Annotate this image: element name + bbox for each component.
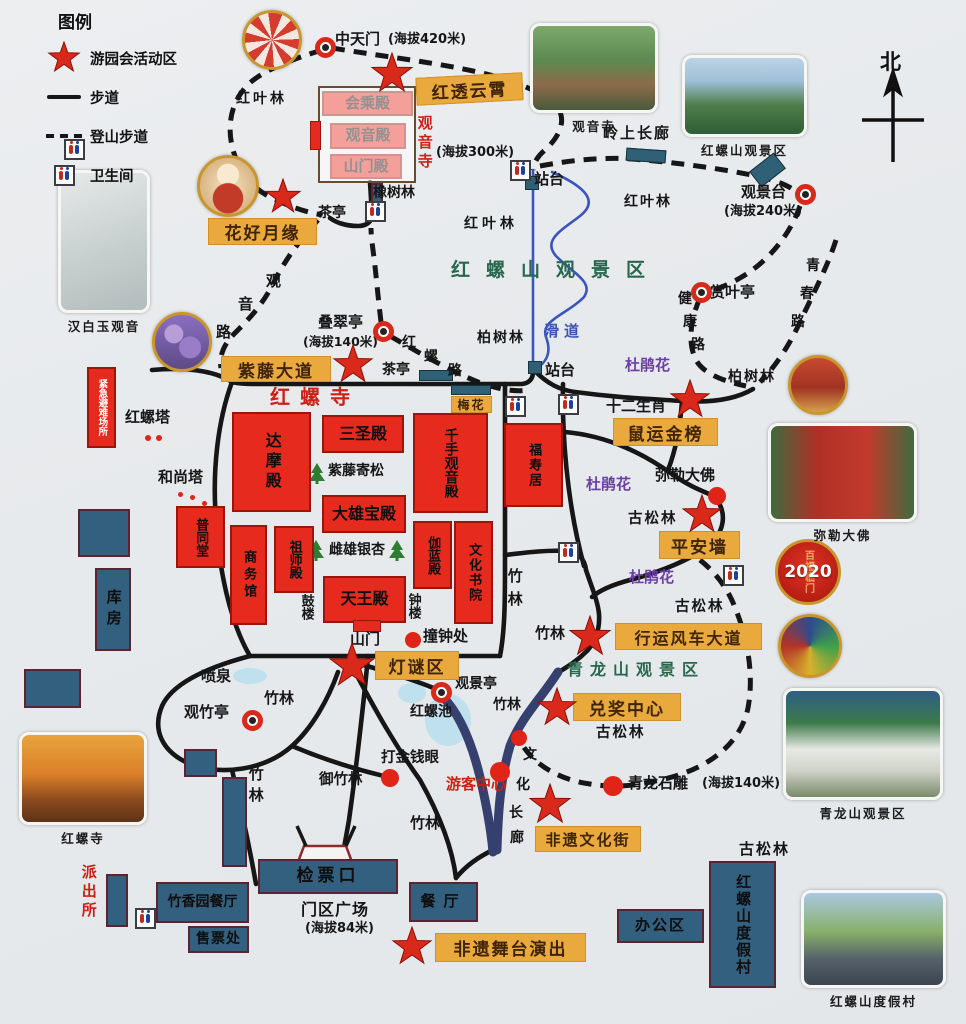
map-label: 赏叶亭 — [710, 285, 755, 301]
legend-row-walkway: 步道 — [44, 83, 177, 111]
building-label: 天王殿 — [340, 591, 388, 607]
activity-label: 梅花 — [451, 396, 492, 413]
building-label: 三圣殿 — [339, 426, 387, 442]
map-label: 健 — [678, 292, 692, 307]
facility-building — [106, 874, 128, 927]
temple-building: 伽蓝殿 — [413, 521, 452, 589]
pavilion-structure — [451, 385, 491, 395]
map-label: 观景亭 — [455, 677, 497, 692]
poi-dot — [190, 495, 195, 500]
event-star-icon — [681, 494, 723, 540]
poi-dot — [603, 776, 623, 796]
scenic-map: 图例 游园会活动区 步道 登山步道 卫生间 北 百福临门 2020 中天门(海拔… — [0, 0, 966, 1024]
photo-qinglongshan — [783, 688, 943, 800]
map-label: 红 — [402, 336, 416, 351]
building-label: 检票口 — [297, 868, 360, 885]
tree-icon — [309, 463, 325, 484]
temple-building: 大雄宝殿 — [322, 495, 406, 533]
photo-caption: 青龙山观景区 — [783, 803, 943, 822]
tree-icon — [389, 540, 405, 561]
facility-building — [222, 777, 247, 867]
label-police-station: 派出所 — [80, 864, 96, 921]
photo-caption: 红螺山观景区 — [682, 140, 807, 159]
photo-windmills — [778, 614, 842, 678]
facility-building: 竹香园餐厅 — [156, 882, 249, 923]
label-maitreya: 弥勒大佛 — [655, 468, 715, 484]
map-label: 竹林 — [535, 626, 565, 642]
badge-year: 2020 — [784, 562, 831, 582]
activity-label: 花好月缘 — [208, 218, 317, 245]
poi-dot — [156, 435, 162, 441]
temple-building: 文化书院 — [454, 521, 493, 624]
toilet-icon — [365, 201, 386, 222]
map-label: 喷泉 — [201, 669, 231, 685]
map-label: 路 — [216, 325, 231, 341]
building-label: 千手观音殿 — [443, 428, 457, 498]
event-star-icon — [568, 615, 612, 663]
map-label: 站台 — [534, 172, 564, 188]
toilet-icon — [505, 396, 526, 417]
map-label: 撞钟处 — [423, 629, 468, 645]
building-label: 紧急避难场所 — [97, 379, 107, 436]
photo-caption: 红螺寺 — [19, 828, 147, 847]
map-label: 观竹亭 — [184, 705, 229, 721]
map-label: 古松林 — [596, 726, 646, 741]
badge-2020: 百福临门 2020 — [775, 539, 841, 605]
map-label: 站台 — [545, 363, 575, 379]
map-label: 竹林 — [506, 568, 522, 614]
pavilion-structure — [626, 148, 667, 164]
legend-label: 游园会活动区 — [90, 48, 177, 69]
activity-label: 行运风车大道 — [615, 623, 762, 650]
label-slideway: 滑道 — [544, 324, 584, 340]
map-label: 音 — [238, 297, 253, 313]
map-label: 路 — [448, 364, 462, 379]
pavilion-structure — [528, 361, 542, 374]
label-dragon-sculpture: 青龙石雕 — [628, 776, 688, 792]
map-label: 红叶林 — [624, 195, 672, 210]
building-label: 普同堂 — [194, 518, 207, 557]
pavilion-marker — [691, 282, 712, 303]
photo-matchmaker — [197, 155, 259, 217]
north-label: 北 — [880, 46, 901, 76]
map-label: 雌雄银杏 — [329, 543, 385, 558]
map-label: 橡树林 — [373, 186, 415, 201]
compass-arrow — [862, 68, 924, 162]
building-label: 文化书院 — [467, 543, 480, 603]
label-hongluoshan-scenic-area: 红螺山观景区 — [451, 261, 661, 281]
pavilion-marker — [242, 710, 263, 731]
map-label: 鼓楼 — [299, 594, 313, 620]
temple-building: 商务馆 — [230, 525, 267, 625]
building-label: 达摩殿 — [263, 432, 279, 492]
facility-building: 红螺山度假村 — [709, 861, 776, 988]
photo-caption: 红螺山度假村 — [801, 991, 946, 1010]
map-label: 御竹林 — [319, 773, 363, 788]
map-label: 紫藤寄松 — [328, 464, 384, 479]
building-label: 竹香园餐厅 — [168, 895, 238, 909]
photo-guanyin-temple — [530, 23, 658, 113]
facility-building — [24, 669, 81, 708]
event-star-icon — [328, 642, 376, 694]
photo-resort — [801, 890, 946, 988]
compass: 北 — [852, 46, 901, 76]
pavilion-marker — [315, 37, 336, 58]
poi-dot — [381, 769, 399, 787]
building-label: 餐厅 — [420, 894, 466, 909]
map-label: 打金钱眼 — [381, 751, 439, 766]
activity-label: 非遗舞台演出 — [435, 933, 586, 962]
activity-label: 紫藤大道 — [221, 356, 331, 382]
map-label: 杜鹃花 — [625, 358, 670, 374]
map-label: 古松林 — [675, 600, 725, 615]
label-viewing-platform: 观景台 — [741, 185, 786, 201]
building-label: 商务馆 — [242, 550, 255, 601]
photo-wisteria — [152, 312, 212, 372]
structure — [318, 86, 416, 183]
map-label: 廊 — [510, 831, 524, 846]
label-guanyin-temple: 观音寺 — [416, 115, 432, 172]
map-label: 竹林 — [493, 698, 521, 713]
label-hongluo-pagoda: 红螺塔 — [125, 410, 170, 426]
event-star-icon — [264, 178, 302, 220]
event-star-icon — [391, 926, 433, 972]
photo-festival — [242, 10, 302, 70]
legend-row-activity: 游园会活动区 — [44, 44, 177, 72]
map-label: 红叶林 — [236, 92, 287, 107]
map-label: 和尚塔 — [158, 470, 203, 486]
map-label: (海拔140米) — [702, 777, 780, 791]
poi-dot — [178, 492, 183, 497]
facility-building: 餐厅 — [409, 882, 478, 922]
label-elevation-420: (海拔420米) — [388, 33, 466, 47]
map-label: 叠翠亭 — [318, 315, 363, 331]
map-label: 青 — [806, 259, 820, 274]
poi-dot — [511, 730, 527, 746]
toilet-icon — [723, 565, 744, 586]
event-star-icon — [528, 783, 572, 831]
legend-label: 步道 — [90, 87, 119, 108]
label-zhongtianmen: 中天门 — [335, 32, 380, 48]
building-label: 售票处 — [196, 932, 241, 946]
activity-label: 灯谜区 — [375, 651, 459, 680]
map-label: 古松林 — [628, 512, 678, 527]
map-label: 钟楼 — [406, 593, 420, 619]
label-elevation-84: (海拔84米) — [305, 922, 374, 936]
photo-caption: 汉白玉观音 — [58, 316, 150, 335]
map-label: 路 — [691, 338, 705, 353]
building-label: 大雄宝殿 — [332, 506, 396, 522]
map-label: 春 — [800, 287, 814, 302]
map-label: 古松林 — [739, 842, 790, 858]
legend-row-trail: 登山步道 — [44, 122, 177, 150]
legend-label: 登山步道 — [90, 126, 148, 147]
event-star-icon — [332, 344, 374, 390]
temple-building: 祖师殿 — [274, 526, 314, 593]
structure — [310, 121, 321, 150]
facility-building: 检票口 — [258, 859, 398, 894]
pavilion-marker — [373, 321, 394, 342]
poi-dot — [202, 501, 207, 506]
photo-caption: 观音寺 — [530, 116, 658, 135]
building-label: 福寿居 — [527, 443, 540, 488]
map-label: 杜鹃花 — [629, 570, 674, 586]
label-qinglongshan-scenic-area: 青龙山观景区 — [567, 662, 705, 679]
photo-maitreya — [768, 423, 917, 522]
legend-title: 图例 — [58, 8, 177, 33]
legend: 图例 游园会活动区 步道 登山步道 卫生间 — [44, 8, 177, 189]
event-star-icon — [669, 379, 711, 425]
poi-dot — [490, 762, 510, 782]
map-label: 竹林 — [264, 691, 294, 707]
map-label: 竹林 — [247, 766, 263, 808]
map-label: 茶亭 — [318, 206, 346, 221]
facility-building — [78, 509, 130, 557]
building-label: 祖师殿 — [287, 540, 300, 579]
temple-building: 天王殿 — [323, 576, 406, 623]
toilet-icon — [558, 394, 579, 415]
facility-building: 库房 — [95, 568, 131, 651]
pavilion-marker — [795, 184, 816, 205]
building-label: 伽蓝殿 — [426, 536, 439, 575]
temple-building: 达摩殿 — [232, 412, 311, 512]
toilet-icon — [558, 542, 579, 563]
map-label: 文 — [523, 748, 537, 763]
map-label: 长 — [509, 806, 523, 821]
building-label: 红螺山度假村 — [735, 874, 750, 976]
temple-building: 普同堂 — [176, 506, 225, 568]
photo-caption: 弥勒大佛 — [768, 525, 917, 544]
map-label: 观 — [266, 274, 281, 290]
activity-label: 红透云霄 — [415, 72, 523, 106]
poi-dot — [145, 435, 151, 441]
facility-building — [184, 749, 217, 777]
map-label: 康 — [683, 315, 697, 330]
trail-dash-icon — [44, 134, 84, 138]
photo-hongluo-temple — [19, 732, 147, 825]
photo-hongluoshan — [682, 55, 807, 137]
temple-building: 紧急避难场所 — [87, 367, 116, 448]
facility-building: 办公区 — [617, 909, 704, 943]
walkway-line-icon — [44, 95, 84, 99]
map-label: 红叶林 — [464, 217, 518, 232]
map-label: 柏树林 — [728, 370, 776, 385]
poi-dot — [405, 632, 421, 648]
label-hongluo-temple: 红螺寺 — [270, 387, 360, 408]
pavilion-marker — [431, 682, 452, 703]
label-elevation-240: (海拔240米) — [724, 205, 802, 219]
toilet-icon — [54, 165, 75, 186]
label-elevation-300: (海拔300米) — [436, 146, 514, 160]
event-star-icon — [44, 41, 84, 75]
map-label: 杜鹃花 — [586, 477, 631, 493]
activity-label: 兑奖中心 — [573, 693, 681, 721]
map-label: 螺 — [424, 350, 438, 365]
legend-label: 卫生间 — [90, 165, 134, 186]
building-label: 办公区 — [635, 918, 686, 933]
map-label: 茶亭 — [382, 363, 410, 378]
label-zodiac: 十二生肖 — [606, 399, 666, 415]
label-gate-plaza: 门区广场 — [301, 902, 369, 919]
temple-building: 千手观音殿 — [413, 413, 488, 513]
toilet-icon — [135, 908, 156, 929]
photo-guanyin-statue — [58, 170, 150, 313]
map-label: 竹林 — [410, 816, 440, 832]
building-label: 库房 — [105, 589, 120, 631]
toilet-icon — [510, 160, 531, 181]
event-star-icon — [536, 687, 578, 733]
map-label: 柏树林 — [477, 331, 525, 346]
facility-building: 售票处 — [188, 926, 249, 953]
temple-building: 福寿居 — [504, 423, 563, 507]
event-star-icon — [370, 52, 414, 100]
photo-shrine — [788, 355, 848, 415]
temple-building: 三圣殿 — [322, 415, 404, 453]
map-label: 红螺池 — [410, 705, 452, 720]
legend-row-toilet: 卫生间 — [44, 161, 177, 189]
map-label: 路 — [791, 315, 805, 330]
